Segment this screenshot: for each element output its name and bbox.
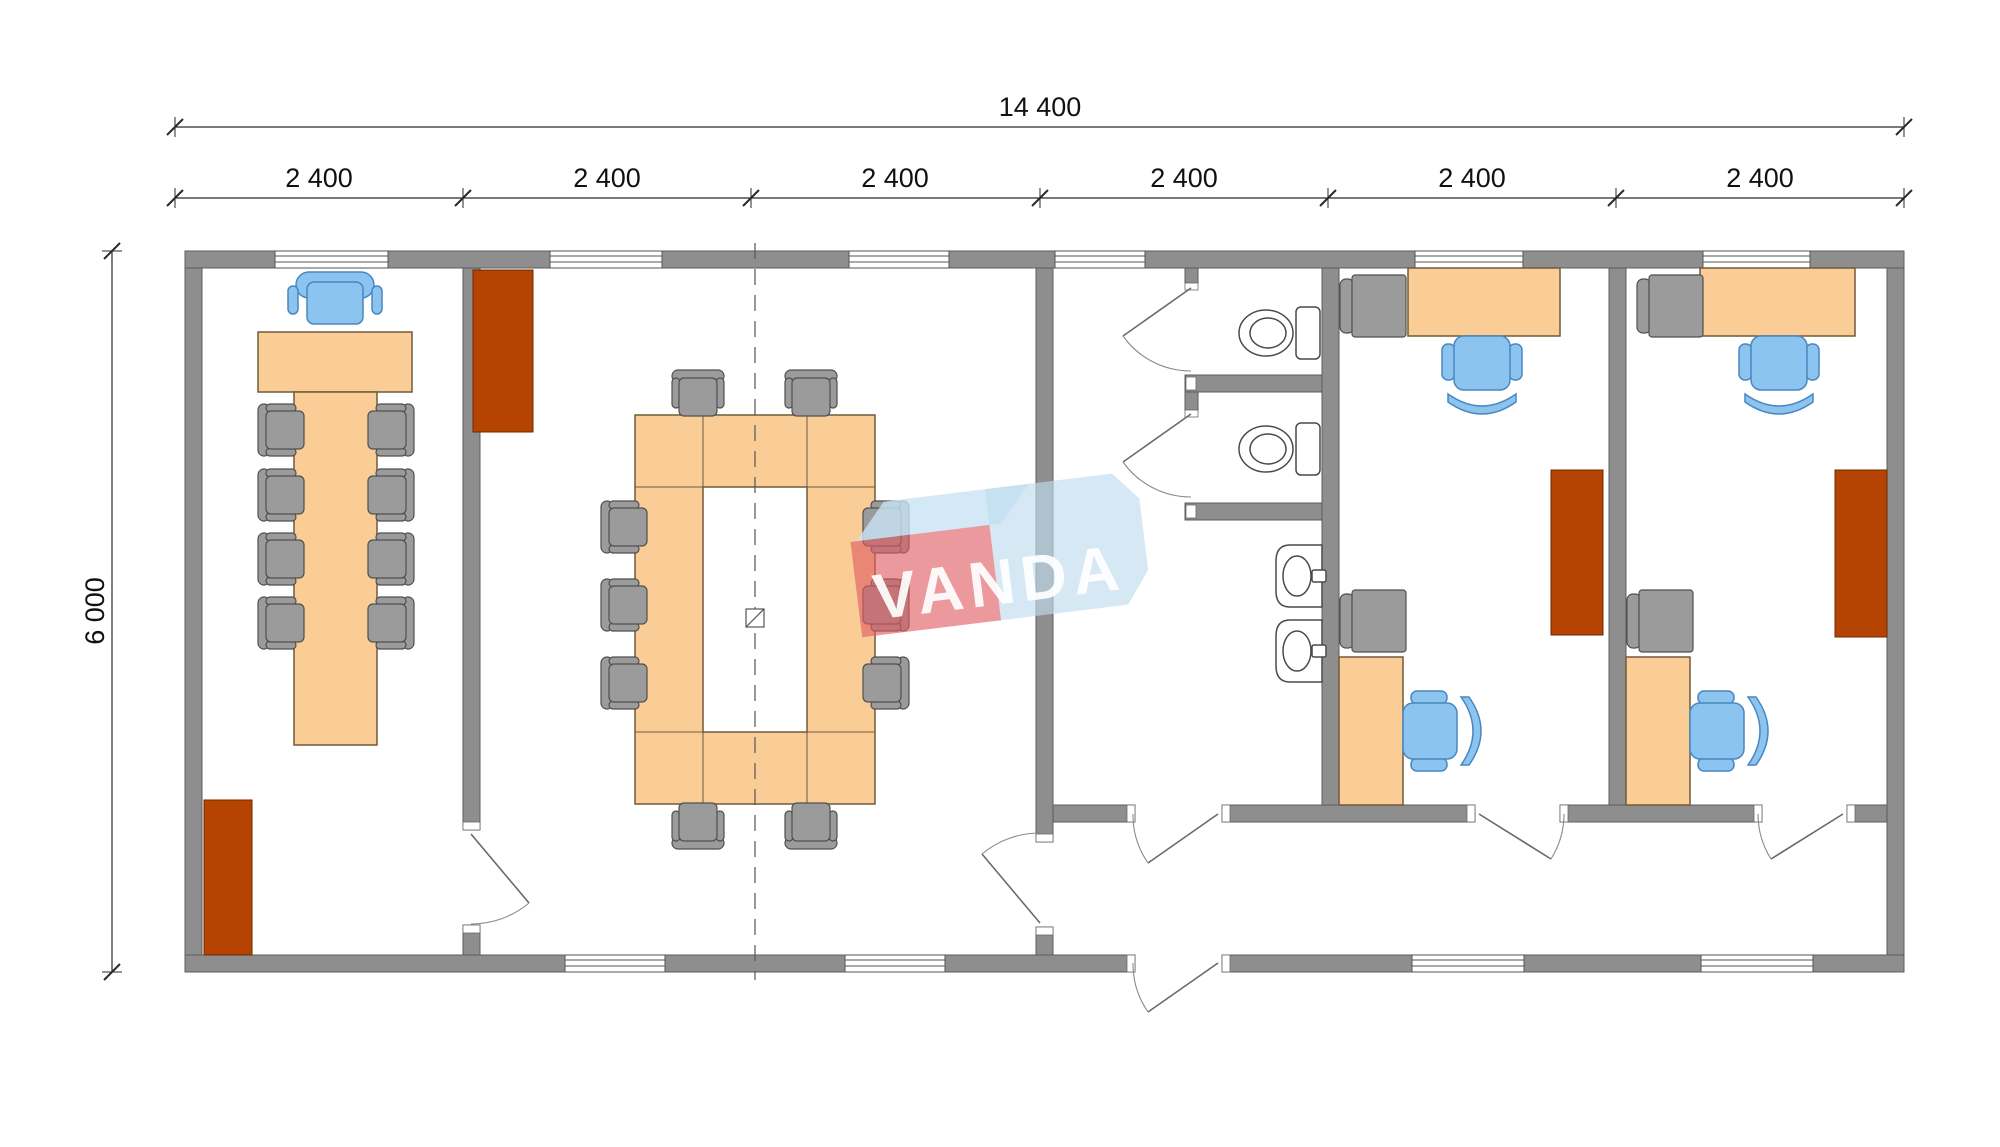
window: [1415, 251, 1523, 268]
side-chair: [785, 803, 837, 849]
cabinet: [1637, 275, 1703, 337]
module-label-6: 2 400: [1726, 163, 1794, 193]
entrance-door: [1133, 963, 1218, 1012]
window: [1701, 955, 1813, 972]
floor-plan-canvas: 14 400 2 400 2 400 2 400 2 400 2 400 2 4…: [0, 0, 2000, 1147]
window: [550, 251, 662, 268]
dimension-total-height: 6 000: [80, 243, 122, 980]
module-label-3: 2 400: [861, 163, 929, 193]
office-2: [1626, 268, 1887, 805]
window: [849, 251, 949, 268]
module-label-2: 2 400: [573, 163, 641, 193]
window: [565, 955, 665, 972]
wall-corridor-3: [1560, 805, 1762, 822]
side-chair: [368, 533, 414, 585]
window: [1055, 251, 1145, 268]
stall-stub-2: [1185, 392, 1198, 410]
side-chair: [258, 469, 304, 521]
radiator: [204, 800, 252, 955]
door: [471, 834, 529, 924]
side-chair: [258, 533, 304, 585]
side-chair: [672, 803, 724, 849]
side-chair: [368, 404, 414, 456]
wall-stall-1: [1185, 375, 1322, 392]
wardrobe: [1835, 470, 1887, 637]
desk: [1700, 268, 1855, 336]
meeting-table-long: [294, 392, 377, 745]
window: [1703, 251, 1810, 268]
side-chair: [601, 501, 647, 553]
door: [1133, 814, 1218, 863]
stall-stub-1: [1185, 268, 1198, 283]
door: [982, 833, 1040, 923]
cabinet: [1627, 590, 1693, 652]
wall-stall-2: [1185, 503, 1322, 520]
wall-corridor-1: [1053, 805, 1135, 822]
stall-door: [1123, 288, 1191, 371]
vanda-watermark: VANDA: [846, 471, 1152, 638]
total-width-label: 14 400: [999, 92, 1082, 122]
side-chair: [368, 469, 414, 521]
side-chair: [601, 657, 647, 709]
side-chair: [672, 370, 724, 416]
module-label-1: 2 400: [285, 163, 353, 193]
side-chair: [601, 579, 647, 631]
office-1: [1339, 268, 1603, 805]
side-chair: [258, 597, 304, 649]
side-chair: [785, 370, 837, 416]
wall-top: [185, 251, 1904, 268]
wall-sanitary-office1: [1322, 268, 1339, 822]
task-chair: [1690, 691, 1768, 771]
toilet: [1239, 423, 1320, 475]
side-chair: [863, 657, 909, 709]
side-chair: [368, 597, 414, 649]
wall-right: [1887, 268, 1904, 955]
window: [275, 251, 388, 268]
desk: [1408, 268, 1560, 336]
door: [1479, 814, 1564, 859]
sanitary-block: [1239, 307, 1326, 682]
total-height-label: 6 000: [80, 577, 110, 645]
meeting-table-head: [258, 332, 412, 392]
dimension-total-width: 14 400: [167, 92, 1912, 137]
sink: [1276, 545, 1326, 607]
executive-chair: [288, 272, 382, 324]
side-chair: [258, 404, 304, 456]
task-chair: [1739, 336, 1819, 414]
wall-corridor-2: [1222, 805, 1475, 822]
door: [1758, 814, 1843, 859]
cabinet: [1340, 275, 1406, 337]
radiator: [473, 270, 533, 432]
module-label-4: 2 400: [1150, 163, 1218, 193]
window: [845, 955, 945, 972]
wardrobe: [1551, 470, 1603, 635]
stall-door: [1123, 414, 1191, 497]
wall-office1-office2: [1609, 268, 1626, 822]
conference-room: [473, 243, 909, 980]
wall-left: [185, 268, 202, 955]
cabinet: [1340, 590, 1406, 652]
meeting-room: [204, 272, 414, 955]
desk: [1339, 657, 1403, 805]
task-chair: [1442, 336, 1522, 414]
task-chair: [1403, 691, 1481, 771]
toilet: [1239, 307, 1320, 359]
dimension-modules: 2 400 2 400 2 400 2 400 2 400 2 400: [167, 163, 1912, 208]
window: [1412, 955, 1524, 972]
module-label-5: 2 400: [1438, 163, 1506, 193]
column-symbol: [746, 609, 764, 627]
sink: [1276, 620, 1326, 682]
desk: [1626, 657, 1690, 805]
